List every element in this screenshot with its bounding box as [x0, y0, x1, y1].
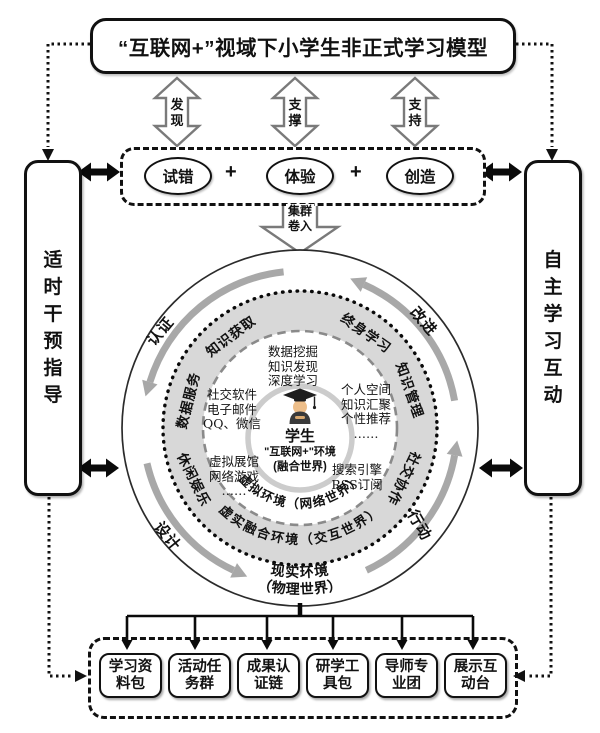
box-label-line: 成果认 [247, 659, 291, 676]
item-line: 电子邮件 [203, 403, 261, 418]
item-line: 知识汇聚 [341, 398, 391, 413]
item-line: …… [209, 484, 259, 499]
black-arrow-right-bottom [479, 459, 523, 478]
box-learning-resource-pack: 学习资 料包 [99, 653, 162, 698]
item-line: 社交软件 [203, 388, 261, 403]
center-labels: 学生 "互联网+"环境 (融合世界) [250, 428, 350, 474]
cluster-engagement-label: 集群卷入 [286, 204, 314, 233]
black-arrow-right-top [480, 163, 522, 182]
box-achievement-certification-chain: 成果认 证链 [237, 653, 300, 698]
box-label-line: 研学工 [316, 659, 360, 676]
left-panel-timely-intervention: 适时干预指导 [24, 160, 82, 496]
box-label-line: 务群 [185, 676, 214, 693]
arrow-label-sustain: 支持 [407, 96, 424, 129]
item-line: 个性推荐 [341, 412, 391, 427]
item-group-top: 数据挖掘 知识发现 深度学习 [268, 345, 318, 389]
bottom-tree [127, 603, 473, 641]
black-arrow-left-bottom [78, 459, 119, 478]
box-display-platform: 展示互 动台 [444, 653, 507, 698]
page-title: “互联网+”视域下小学生非正式学习模型 [118, 31, 488, 61]
box-label-line: 证链 [254, 676, 283, 693]
center-environment-label: "互联网+"环境 [250, 446, 350, 460]
item-line: 深度学习 [268, 374, 318, 389]
box-label-line: 展示互 [454, 659, 498, 676]
box-label-line: 料包 [116, 676, 145, 693]
center-student-label: 学生 [250, 428, 350, 446]
box-activity-task-group: 活动任 务群 [168, 653, 231, 698]
right-panel-label: 自主学习互动 [543, 247, 564, 409]
ellipse-label: 试错 [162, 165, 193, 187]
dotted-connector-bottom-right [527, 491, 551, 676]
process-box: 试错 + 体验 + 创造 [120, 147, 486, 206]
right-panel-autonomous-learning: 自主学习互动 [524, 160, 582, 496]
ellipse-experience: 体验 [266, 157, 334, 195]
ellipse-trial-error: 试错 [144, 157, 212, 195]
plus-sign: + [350, 161, 362, 184]
box-label-line: 业团 [392, 676, 421, 693]
item-group-left: 社交软件 电子邮件 QQ、微信 [203, 388, 261, 432]
ellipse-label: 体验 [284, 165, 315, 187]
plus-sign: + [225, 161, 237, 184]
item-line: 个人空间 [341, 383, 391, 398]
box-research-toolkit: 研学工 具包 [306, 653, 369, 698]
item-line: RSS订阅 [331, 478, 382, 493]
arrow-label-discover: 发现 [169, 96, 186, 129]
box-mentor-team: 导师专 业团 [375, 653, 438, 698]
center-world-label: (融合世界) [250, 460, 350, 474]
dotted-connector-top-left [48, 44, 90, 147]
item-line: 知识发现 [268, 360, 318, 375]
ellipse-label: 创造 [404, 165, 435, 187]
box-label-line: 动台 [461, 676, 490, 693]
informal-learning-model-diagram: 虚拟环境（网络世界） 虚实融合环境（交互世界） 现实环境 （物理世界） [0, 0, 600, 733]
bottom-resources-container: 学习资 料包 活动任 务群 成果认 证链 研学工 具包 导师专 业团 展示互 动… [88, 637, 518, 719]
item-line: 数据挖掘 [268, 345, 318, 360]
arrow-label-support: 支撑 [287, 96, 304, 129]
left-panel-label: 适时干预指导 [43, 247, 64, 409]
dotted-connector-bottom-left [49, 491, 73, 676]
arrowhead-right [75, 670, 87, 682]
box-label-line: 具包 [323, 676, 352, 693]
black-arrow-left-top [78, 163, 120, 182]
ellipse-create: 创造 [386, 157, 454, 195]
box-label-line: 学习资 [109, 659, 153, 676]
title-box: “互联网+”视域下小学生非正式学习模型 [90, 18, 516, 74]
box-label-line: 导师专 [385, 659, 429, 676]
dotted-connector-top-right [510, 44, 552, 147]
box-label-line: 活动任 [178, 659, 222, 676]
